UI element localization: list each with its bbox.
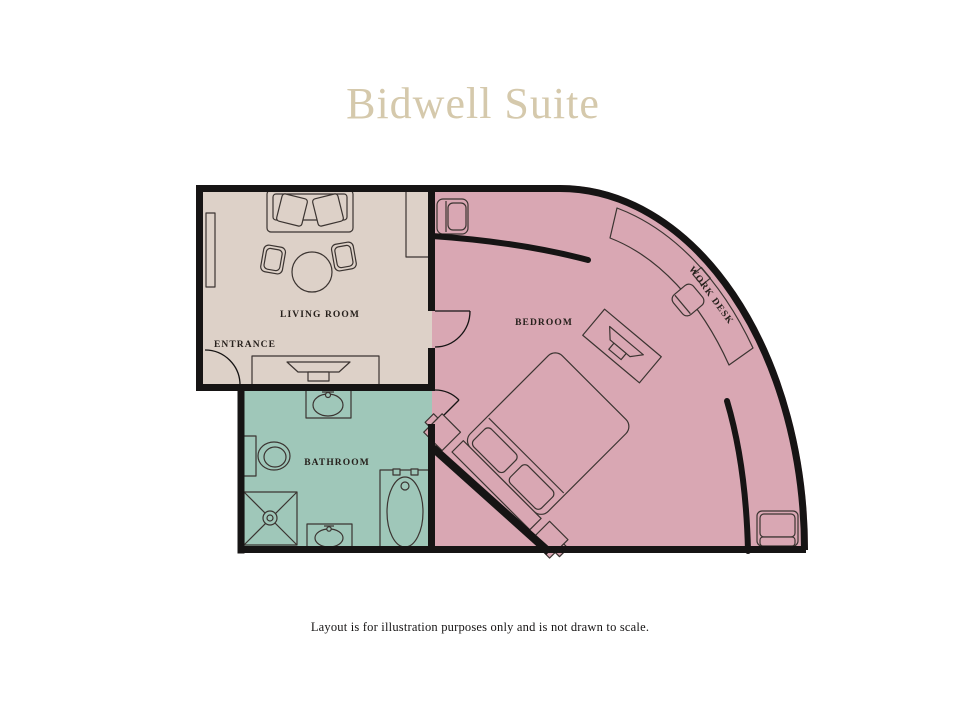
tub-tap-right: [411, 469, 418, 475]
sink-bottom-tap: [327, 527, 331, 531]
disclaimer-note: Layout is for illustration purposes only…: [0, 620, 960, 635]
bedroom-label: BEDROOM: [515, 318, 573, 328]
toilet-tank: [243, 436, 256, 476]
shower-drain: [263, 511, 277, 525]
entrance-label: ENTRANCE: [214, 340, 276, 350]
toilet-bowl: [258, 442, 290, 470]
floorplan-page: Bidwell Suite: [0, 0, 960, 720]
armchair-right: [331, 241, 357, 271]
living-room-label: LIVING ROOM: [280, 310, 360, 320]
bathroom-label: BATHROOM: [304, 458, 370, 468]
floorplan-drawing: ENTRANCE LIVING ROOM BATHROOM BEDROOM WO…: [0, 0, 960, 720]
tv-screen: [287, 362, 350, 372]
armchair-left: [260, 244, 286, 274]
coffee-table: [292, 252, 332, 292]
tub-tap-left: [393, 469, 400, 475]
armchair-bedroom-bottom: [757, 511, 798, 546]
armchair-bedroom-top: [437, 199, 468, 234]
side-console: [406, 191, 431, 257]
wall-shelf: [206, 213, 215, 287]
bathtub: [387, 477, 423, 547]
sink-top-tap: [326, 393, 331, 398]
tv-base: [308, 372, 329, 381]
